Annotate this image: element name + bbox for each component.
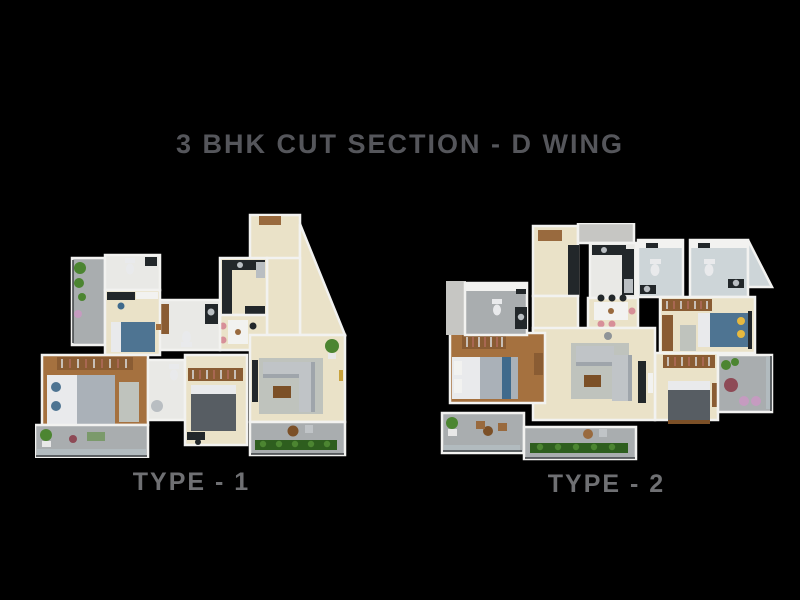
type2-west-wardrobe (462, 335, 506, 349)
type2-dressing-wardrobe (662, 299, 712, 311)
type1-living-room (250, 335, 345, 422)
wall-art (339, 370, 343, 381)
type1-living-balcony (250, 422, 345, 455)
type2-south-balcony (524, 427, 636, 459)
kitchen-sink-icon (237, 262, 243, 268)
mirror-icon (698, 243, 710, 248)
type2-sw-balcony (442, 413, 524, 453)
type1-bedroom-3 (185, 355, 247, 445)
type2-foyer-cabinet (568, 245, 579, 295)
type1-study-desk (107, 292, 135, 300)
pouf (724, 378, 738, 392)
floorplan-type-1-render (35, 210, 348, 458)
type2-se-balcony (718, 355, 772, 412)
plant-icon (325, 339, 339, 353)
toilet-icon (705, 264, 714, 276)
mirror-icon (646, 243, 658, 248)
mirror-icon (516, 289, 526, 294)
lounge-chair (87, 432, 105, 441)
type1-common-bathroom (157, 300, 220, 350)
type2-bedroom-west (450, 333, 545, 403)
type2-bathroom-nw (446, 281, 527, 335)
type2-bathroom-b (690, 240, 772, 297)
type1-side-balcony (72, 258, 105, 345)
type1-master-wardrobe (57, 357, 133, 370)
type1-master-balcony (35, 425, 148, 458)
type1-bedroom3-bed (191, 394, 236, 431)
toilet-icon (493, 305, 501, 316)
balcony-table (583, 429, 593, 439)
type2-fridge (624, 279, 633, 293)
type1-entrance-door (259, 216, 281, 225)
type1-tv-unit (252, 360, 258, 402)
floorplan-type-2-render (438, 223, 775, 465)
type1-master-bedroom (42, 355, 148, 425)
type2-coffee-table (584, 375, 601, 387)
type2-lobby-wall (578, 223, 634, 243)
type2-bathroom-a (638, 240, 683, 297)
type1-coffee-table (273, 386, 291, 398)
type2-entrance-door (538, 230, 562, 241)
toilet-icon (651, 264, 660, 276)
slide-background: 3 BHK CUT SECTION - D WING (0, 0, 800, 600)
toilet-icon (182, 331, 191, 343)
type1-bathroom-2 (105, 255, 160, 290)
type2-bedroom-southeast (655, 353, 718, 424)
type1-kitchen (220, 258, 267, 315)
type-2-label: TYPE - 2 (438, 470, 775, 499)
type1-master-bathroom (148, 360, 185, 420)
type1-study-bedroom (105, 290, 161, 355)
washing-machine-icon (151, 400, 163, 412)
type2-kitchen (590, 243, 636, 298)
type2-dining-area (588, 295, 638, 329)
kitchen-sink-icon (601, 247, 607, 253)
type1-fridge (256, 262, 265, 278)
type2-entrance-foyer (533, 226, 579, 296)
type-1-label: TYPE - 1 (35, 468, 348, 497)
type2-bedroom-east (660, 297, 755, 353)
balcony-table (288, 426, 299, 437)
toilet-icon (126, 264, 134, 275)
page-title: 3 BHK CUT SECTION - D WING (0, 129, 800, 160)
type2-se-bed (668, 390, 710, 420)
type2-tv-unit (638, 361, 646, 403)
floor-lamp-icon (604, 332, 612, 340)
